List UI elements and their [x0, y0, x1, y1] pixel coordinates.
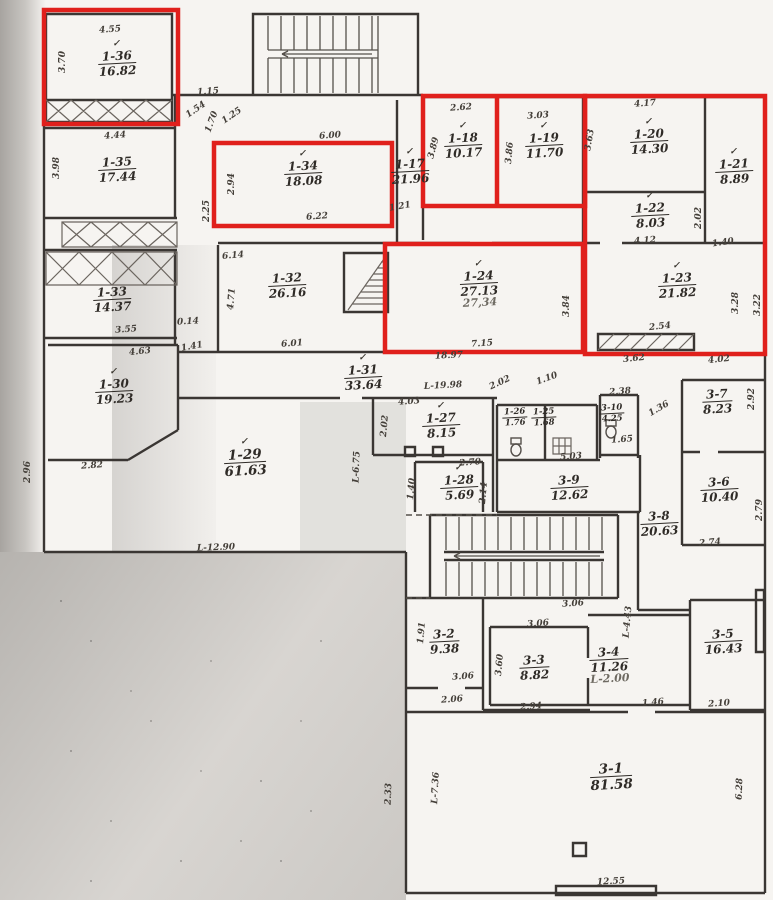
- dim-label: 4.44: [104, 130, 127, 142]
- dim-label: 5.03: [560, 451, 583, 463]
- highlight-rooms-1-20-1-23: [585, 96, 765, 354]
- dim-label: L-19.98: [424, 380, 463, 392]
- dim-label: 2.06: [441, 694, 464, 706]
- dim-label: 2.96: [23, 461, 33, 483]
- dim-label: 6.22: [306, 211, 329, 223]
- dim-label: 2.10: [708, 698, 731, 710]
- dim-label: 4.71: [226, 288, 238, 311]
- dim-label: 2.02: [694, 207, 704, 229]
- room-1-21: ✓ 1-21 8.89: [714, 147, 754, 186]
- room-1-20: ✓ 1-20 14.30: [629, 117, 669, 156]
- room-3-4: 3-4 11.26 L-2.00: [588, 635, 630, 686]
- dim-label: 1.91: [416, 622, 428, 645]
- dim-label: 1.40: [406, 478, 418, 501]
- dim-label: 3.28: [731, 292, 741, 314]
- dim-label: 1.65: [611, 434, 634, 446]
- room-1-34: ✓ 1-34 18.08: [283, 149, 323, 188]
- room-1-29: ✓ 1-29 61.63: [223, 437, 267, 480]
- dim-label: 4.12: [634, 235, 657, 247]
- room-1-28: ✓ 1-28 5.69: [439, 463, 479, 502]
- room-3-8: 3-8 20.63: [639, 499, 678, 538]
- dim-label: 1.15: [197, 86, 220, 98]
- dim-label: 6.14: [222, 250, 245, 262]
- room-1-19: ✓ 1-19 11.70: [524, 121, 564, 160]
- room-1-23: ✓ 1-23 21.82: [657, 261, 697, 300]
- dim-label: 12.55: [597, 876, 626, 887]
- dim-label: 3.06: [527, 618, 550, 630]
- dim-label: 0.14: [177, 316, 199, 327]
- dim-label: 6.00: [319, 130, 342, 142]
- room-1-32: 1-32 26.16: [267, 261, 307, 300]
- room-3-3: 3-3 8.82: [518, 643, 550, 682]
- dim-label: 6.28: [735, 778, 746, 800]
- room-3-6: 3-6 10.40: [699, 465, 738, 504]
- dim-label: 2.33: [384, 783, 395, 805]
- room-1-31: ✓ 1-31 33.64: [343, 353, 383, 392]
- room-1-26: 1-26 1.76: [502, 407, 528, 428]
- dim-label: 3.03: [527, 110, 550, 122]
- room-1-33: 1-33 14.37: [92, 275, 132, 314]
- dim-label: 1.46: [642, 697, 665, 709]
- dim-label: 3.84: [562, 295, 572, 317]
- room-1-36: ✓ 1-36 16.82: [97, 39, 137, 78]
- room-3-1: 3-1 81.58: [589, 751, 633, 794]
- dim-label: 2.25: [202, 200, 212, 222]
- pencil-note: L-2.00: [590, 672, 630, 686]
- dim-label: 2.94: [520, 701, 543, 713]
- room-1-17: ✓ 1-17 21.96: [390, 147, 430, 186]
- room-1-22: ✓ 1-22 8.03: [630, 191, 670, 230]
- dim-label: 2.94: [227, 173, 237, 195]
- balcony-hatching: [46, 100, 694, 454]
- pencil-note: 27,34: [461, 296, 500, 310]
- dim-label: 2.02: [379, 415, 391, 438]
- dim-label: 3.06: [562, 598, 585, 610]
- dim-label: 2.79: [755, 499, 765, 521]
- room-1-27: ✓ 1-27 8.15: [421, 401, 461, 440]
- room-1-18: ✓ 1-18 10.17: [443, 121, 483, 160]
- dim-label: 2.74: [699, 537, 722, 549]
- stair-steps: [268, 16, 602, 596]
- room-3-10: 3-10 4.25: [599, 403, 625, 424]
- room-3-7: 3-7 8.23: [701, 377, 733, 416]
- room-1-35: 1-35 17.44: [97, 145, 137, 184]
- dim-label: 2.82: [81, 460, 104, 472]
- dim-label: 4.03: [398, 396, 421, 408]
- room-3-5: 3-5 16.43: [703, 617, 742, 656]
- dim-label: 3.70: [58, 51, 68, 73]
- dim-label: 3.55: [115, 324, 138, 336]
- room-1-25: 1-25 1.68: [531, 407, 557, 428]
- dim-label: L-6.75: [351, 451, 362, 483]
- dim-label: 2.92: [747, 388, 757, 410]
- dim-label: 2.62: [450, 102, 473, 114]
- dim-label: 3.98: [52, 157, 62, 179]
- dim-label: 2.38: [609, 386, 632, 398]
- dim-label: 4.17: [634, 98, 657, 110]
- dim-label: 18.97: [435, 350, 464, 361]
- dim-label: 7.15: [471, 338, 494, 350]
- floor-plan: ✓ 1-36 16.82 1-35 17.44 1-33 14.37 ✓ 1-3…: [0, 0, 773, 900]
- dim-label: 2.14: [478, 482, 490, 505]
- dim-label: L-7.36: [430, 772, 442, 804]
- dim-label: 3.22: [753, 294, 763, 316]
- dim-label: 3.86: [504, 142, 516, 165]
- room-1-24: ✓ 1-24 27.13 27,34: [459, 259, 500, 310]
- dim-label: 3.06: [452, 671, 475, 683]
- dim-label: L-12.90: [197, 542, 236, 553]
- room-1-30: ✓ 1-30 19.23: [94, 367, 134, 406]
- room-3-2: 3-2 9.38: [428, 617, 460, 656]
- dim-label: 6.01: [281, 338, 304, 350]
- dim-label: 3.60: [494, 654, 506, 677]
- dim-label: 2.70: [459, 457, 482, 469]
- dim-label: 4.55: [99, 24, 122, 36]
- room-3-9: 3-9 12.62: [549, 463, 588, 502]
